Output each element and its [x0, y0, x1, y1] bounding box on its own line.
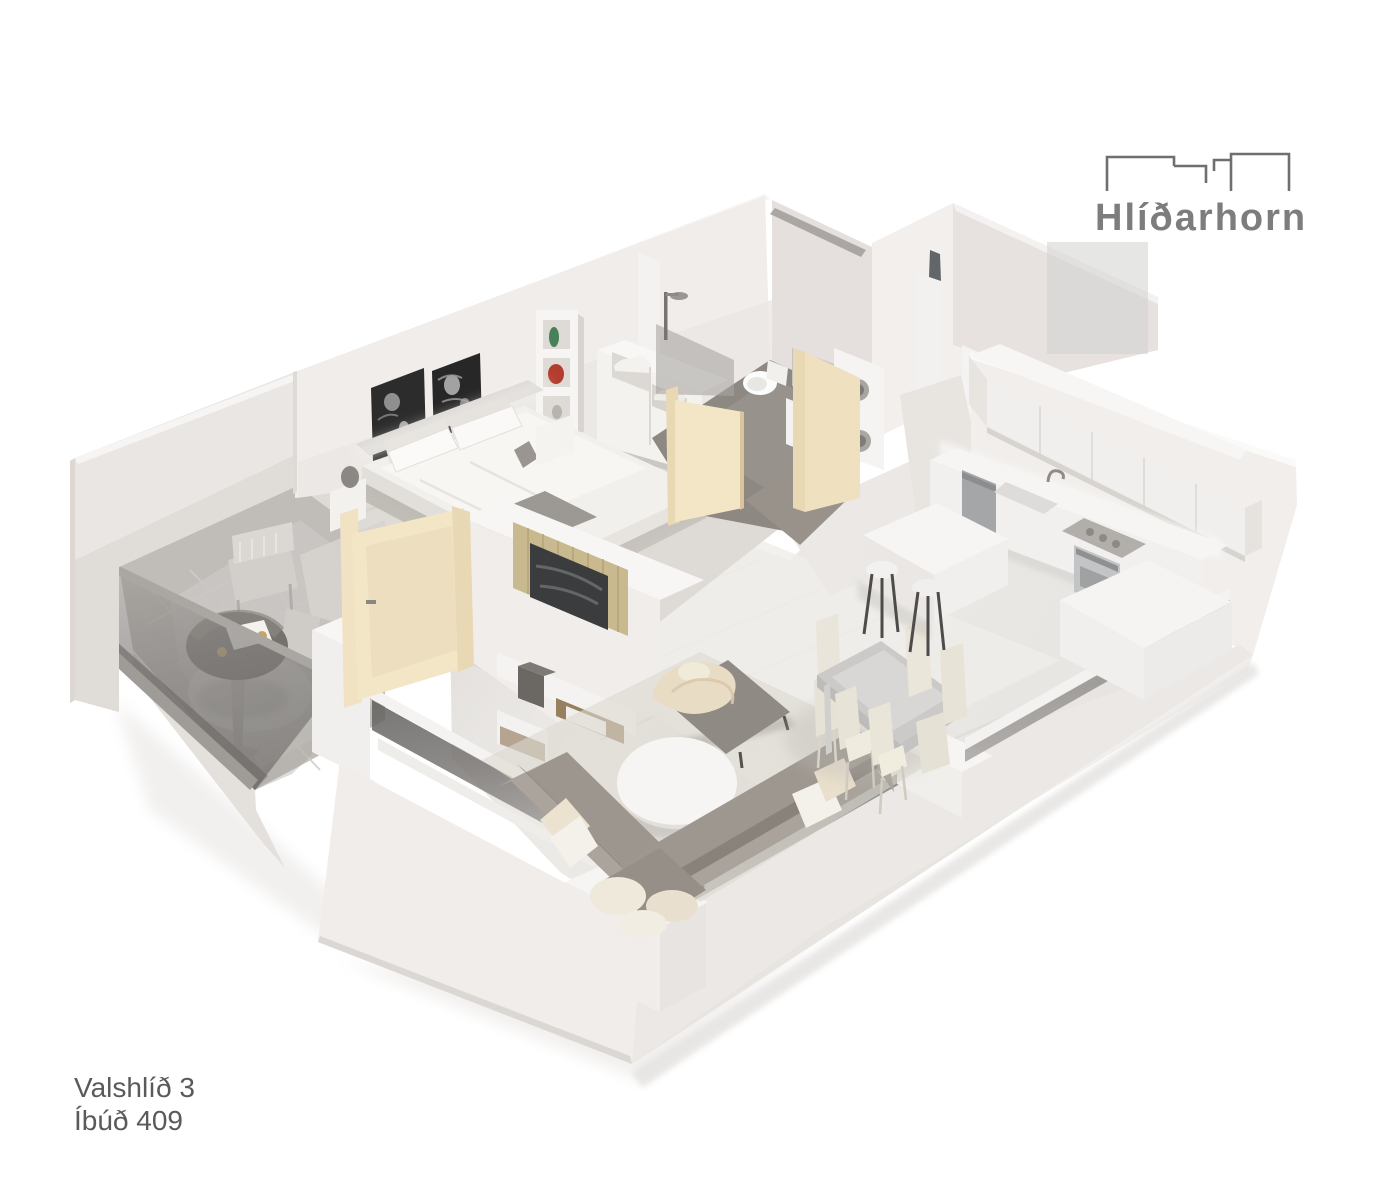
- svg-text:Íbúð 409: Íbúð 409: [74, 1105, 183, 1136]
- svg-text:Valshlíð 3: Valshlíð 3: [74, 1072, 195, 1103]
- svg-text:Hlíðarhorn: Hlíðarhorn: [1095, 197, 1307, 239]
